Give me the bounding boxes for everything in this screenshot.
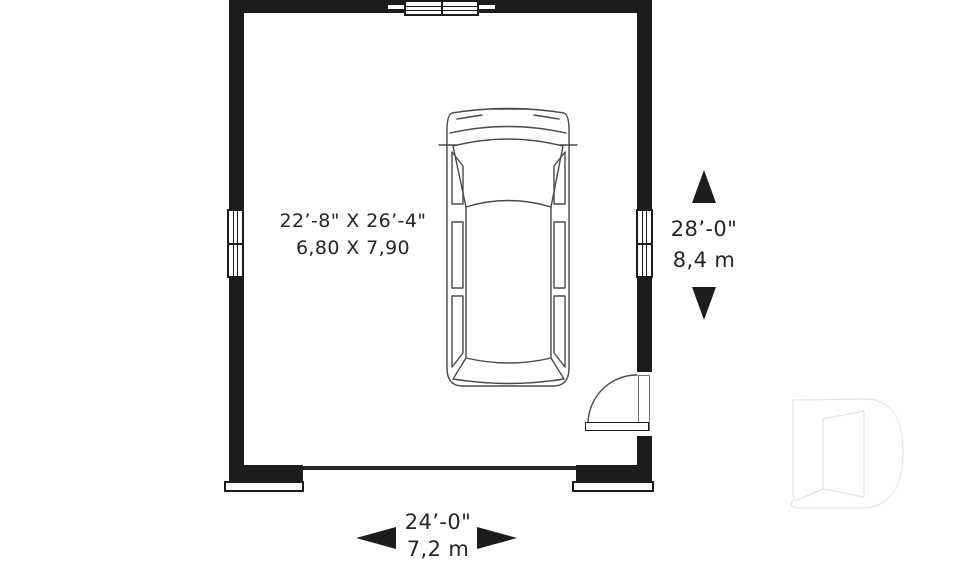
window-mullion [638,243,651,245]
width-dimension-label: 24’-0" 7,2 m [393,509,483,563]
arrow-left-icon [356,527,396,549]
width-dimension-imperial: 24’-0" [393,509,483,536]
arrow-down-icon [692,287,716,320]
left-wall-window-icon [227,209,244,278]
window-mullion [441,2,443,14]
right-wall-window-icon [636,209,653,278]
footing-right [572,481,654,492]
vehicle-icon [435,98,580,393]
window-mullion [229,243,242,245]
wall-bottom-right-stub [576,465,652,482]
interior-dimension-label: 22’-8" X 26’-4" 6,80 X 7,90 [262,208,444,262]
width-dimension-metric: 7,2 m [393,536,483,563]
interior-dimension-imperial: 22’-8" X 26’-4" [262,208,444,235]
arrow-up-icon [692,170,716,203]
arrow-right-icon [477,527,517,549]
depth-dimension-imperial: 28’-0" [655,214,753,245]
floor-plan-sheet: 22’-8" X 26’-4" 6,80 X 7,90 28’-0" 8,4 m… [0,0,960,569]
footing-left [224,481,304,492]
depth-dimension-label: 28’-0" 8,4 m [655,214,753,276]
garage-door-opening-line [303,466,576,470]
interior-dimension-metric: 6,80 X 7,90 [262,235,444,262]
window-top-sill-left [388,5,405,9]
drummond-logo-icon [785,393,910,515]
door-leaf [585,422,649,431]
top-wall-window-icon [404,0,479,16]
depth-dimension-metric: 8,4 m [655,245,753,276]
window-top-sill-right [478,5,495,9]
wall-bottom-left-stub [229,465,303,482]
